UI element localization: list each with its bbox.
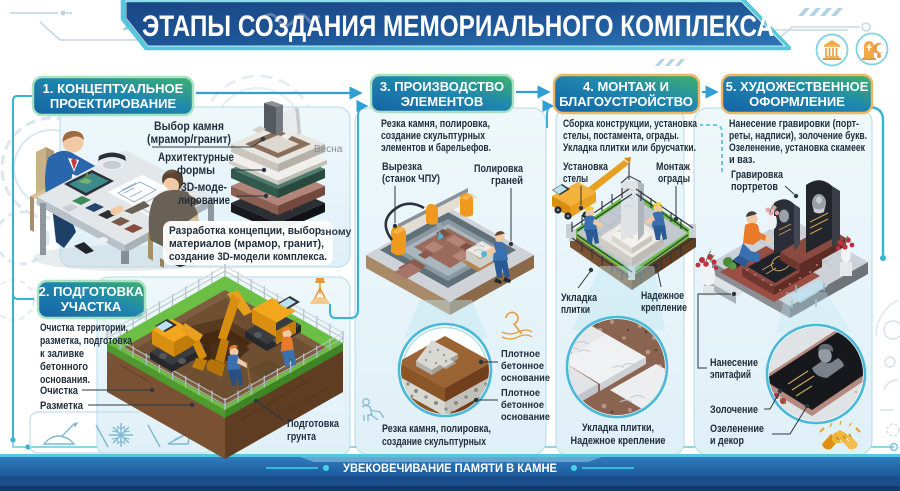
svg-text:Нанесение гравировки (порт-: Нанесение гравировки (порт- xyxy=(729,118,859,130)
svg-text:портретов: портретов xyxy=(731,181,778,193)
svg-text:Выбор камня: Выбор камня xyxy=(154,121,224,133)
svg-text:Золочение: Золочение xyxy=(710,404,758,416)
svg-text:лирование: лирование xyxy=(178,195,230,207)
svg-text:и ваз.: и ваз. xyxy=(729,154,755,166)
svg-text:Надежное крепление: Надежное крепление xyxy=(571,435,666,447)
svg-text:Укладка: Укладка xyxy=(561,292,598,304)
svg-text:Плотное: Плотное xyxy=(501,348,540,360)
svg-text:стелы, постамента, ограды.: стелы, постамента, ограды. xyxy=(563,130,679,142)
svg-text:основание: основание xyxy=(501,372,550,384)
svg-text:(станок ЧПУ): (станок ЧПУ) xyxy=(382,173,440,185)
svg-text:создание 3D-модели комплекса.: создание 3D-модели комплекса. xyxy=(169,251,327,263)
svg-text:3D-моде-: 3D-моде- xyxy=(181,182,227,194)
svg-text:Подготовка: Подготовка xyxy=(287,418,340,430)
svg-text:граней: граней xyxy=(491,175,523,187)
svg-text:ПРОЕКТИРОВАНИЕ: ПРОЕКТИРОВАНИЕ xyxy=(50,96,177,111)
svg-text:3. ПРОИЗВОДСТВО: 3. ПРОИЗВОДСТВО xyxy=(380,79,504,94)
svg-text:Очистка: Очистка xyxy=(40,385,79,397)
svg-text:элементов и барельефов.: элементов и барельефов. xyxy=(381,142,491,154)
svg-text:Весна: Весна xyxy=(314,144,343,155)
svg-text:Установка: Установка xyxy=(563,161,609,173)
svg-text:крепление: крепление xyxy=(641,302,687,314)
svg-text:эпитафий: эпитафий xyxy=(710,369,751,381)
svg-text:формы: формы xyxy=(177,165,215,177)
svg-text:Разметка: Разметка xyxy=(40,400,84,412)
svg-text:ЭТАПЫ СОЗДАНИЯ МЕМОРИАЛЬНОГО К: ЭТАПЫ СОЗДАНИЯ МЕМОРИАЛЬНОГО КОМПЛЕКСА xyxy=(142,10,774,43)
svg-text:Гравировка: Гравировка xyxy=(731,169,784,181)
svg-text:создание скульптурных: создание скульптурных xyxy=(382,436,487,448)
svg-text:и декор: и декор xyxy=(710,435,744,447)
svg-text:стелы: стелы xyxy=(563,173,588,185)
svg-text:Резка камня, полировка,: Резка камня, полировка, xyxy=(381,118,490,130)
svg-text:Сборка конструкции, установка: Сборка конструкции, установка xyxy=(563,118,698,130)
svg-text:Укладка плитки или брусчатки.: Укладка плитки или брусчатки. xyxy=(563,142,696,154)
svg-text:БЛАГОУСТРОЙСТВО: БЛАГОУСТРОЙСТВО xyxy=(559,94,693,109)
svg-text:УВЕКОВЕЧИВАНИЕ ПАМЯТИ В КАМНЕ: УВЕКОВЕЧИВАНИЕ ПАМЯТИ В КАМНЕ xyxy=(343,461,557,475)
svg-text:(мрамор/гранит): (мрамор/гранит) xyxy=(147,134,231,146)
svg-text:Разработка концепции, выбор: Разработка концепции, выбор xyxy=(169,225,321,237)
svg-text:Очистка территории,: Очистка территории, xyxy=(40,322,128,334)
svg-text:Вырезка: Вырезка xyxy=(382,161,423,173)
svg-text:5. ХУДОЖЕСТВЕННОЕ: 5. ХУДОЖЕСТВЕННОЕ xyxy=(726,79,869,94)
svg-text:ЭЛЕМЕНТОВ: ЭЛЕМЕНТОВ xyxy=(401,94,484,109)
svg-text:плитки: плитки xyxy=(561,304,590,316)
svg-text:к заливке: к заливке xyxy=(40,348,84,360)
svg-text:материалов (мрамор, гранит),: материалов (мрамор, гранит), xyxy=(169,238,324,250)
svg-text:Монтаж: Монтаж xyxy=(656,161,690,173)
svg-text:разметка, подготовка: разметка, подготовка xyxy=(40,335,133,347)
svg-text:Озеленение: Озеленение xyxy=(710,423,764,435)
svg-text:Надежное: Надежное xyxy=(641,290,684,302)
svg-text:ограды: ограды xyxy=(658,173,690,185)
svg-text:Укладка плитки,: Укладка плитки, xyxy=(582,422,654,434)
svg-text:ОФОРМЛЕНИЕ: ОФОРМЛЕНИЕ xyxy=(749,94,845,109)
svg-text:Озеленение, установка скамеек: Озеленение, установка скамеек xyxy=(729,142,865,154)
svg-text:зному: зному xyxy=(320,226,351,238)
svg-text:4. МОНТАЖ И: 4. МОНТАЖ И xyxy=(583,79,669,94)
svg-text:Полировка: Полировка xyxy=(474,163,524,175)
svg-text:УЧАСТКА: УЧАСТКА xyxy=(61,299,122,314)
svg-text:бетонное: бетонное xyxy=(501,399,544,411)
svg-text:Нанесение: Нанесение xyxy=(710,357,758,369)
svg-text:создание скульптурных: создание скульптурных xyxy=(381,130,486,142)
svg-text:2. ПОДГОТОВКА: 2. ПОДГОТОВКА xyxy=(39,284,144,299)
svg-text:бетонного: бетонного xyxy=(40,361,88,373)
svg-text:Плотное: Плотное xyxy=(501,387,540,399)
svg-text:реты, надписи), золочение букв: реты, надписи), золочение букв. xyxy=(729,130,867,142)
svg-text:грунта: грунта xyxy=(287,431,317,443)
svg-text:Резка камня, полировка,: Резка камня, полировка, xyxy=(382,423,491,435)
svg-text:1. КОНЦЕПТУАЛЬНОЕ: 1. КОНЦЕПТУАЛЬНОЕ xyxy=(43,81,184,96)
svg-text:бетонное: бетонное xyxy=(501,360,544,372)
svg-text:основание: основание xyxy=(501,411,550,423)
svg-text:Архитектурные: Архитектурные xyxy=(158,152,234,164)
